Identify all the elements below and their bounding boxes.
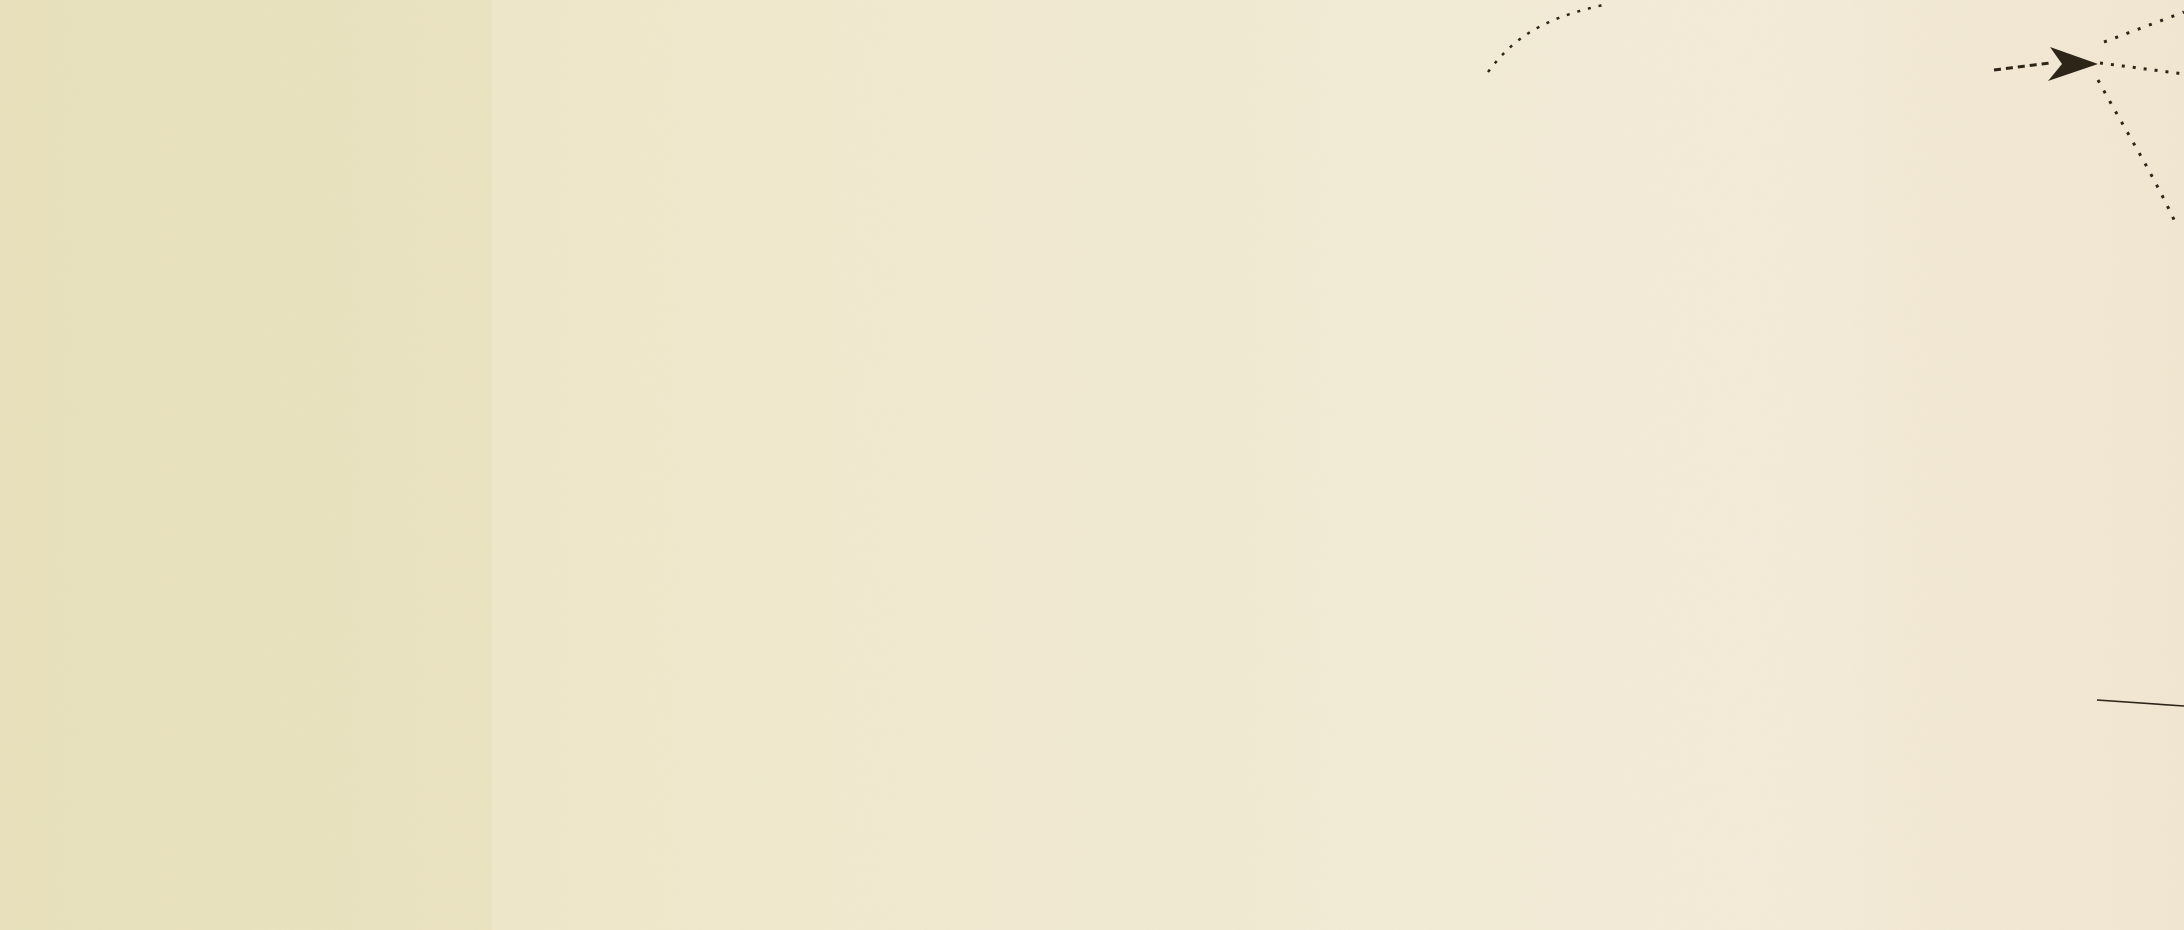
paper-texture [0,0,2184,930]
map-stage [0,0,2184,930]
estate-map-canvas[interactable] [0,0,2184,930]
